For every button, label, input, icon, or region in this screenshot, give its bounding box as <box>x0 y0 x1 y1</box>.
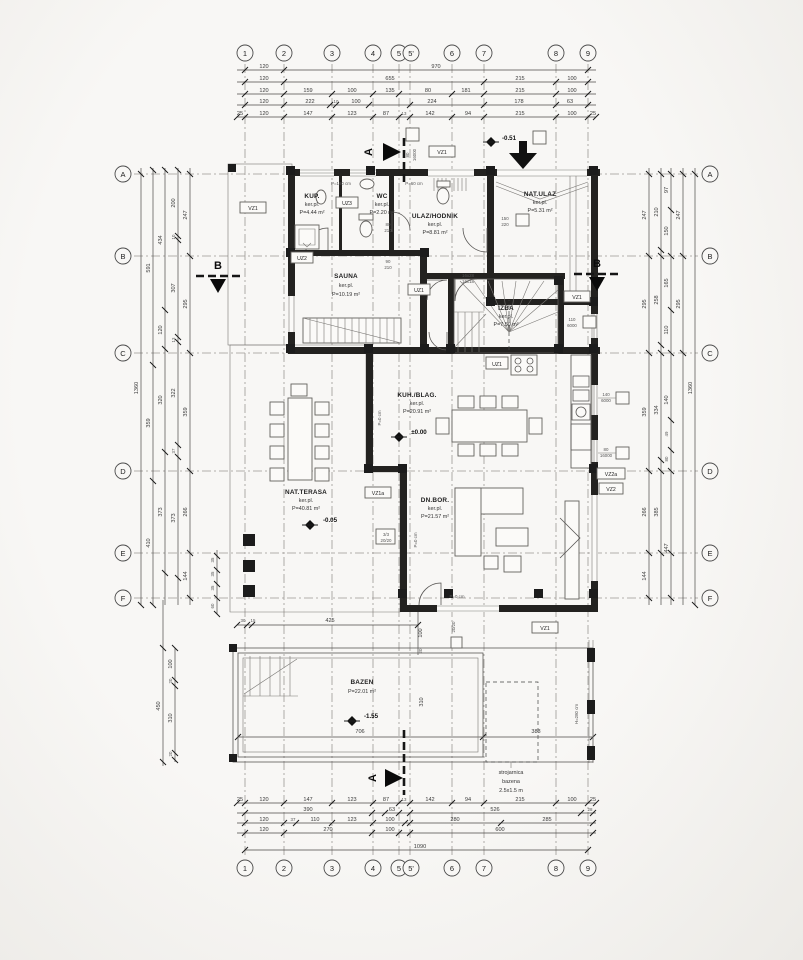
dim: 224 <box>427 99 436 105</box>
dim: 15 <box>251 618 256 623</box>
dim: 49 <box>664 431 669 436</box>
grid-label: 2 <box>282 864 286 873</box>
spec: 3/3 <box>383 532 390 537</box>
dim: 359 <box>642 407 648 416</box>
dim: 110 <box>664 326 670 335</box>
dim: 13 <box>402 111 407 116</box>
room-area: P=21.57 m² <box>421 514 449 520</box>
room-name: DN.BOR. <box>421 497 449 504</box>
dim: 215 <box>515 797 524 803</box>
dim: 37 <box>171 448 176 453</box>
dim: 97 <box>664 187 670 193</box>
dim: 373 <box>171 513 177 522</box>
room-name: KUP. <box>304 193 319 200</box>
spec: 80 <box>405 152 410 157</box>
spec: P=0 cm <box>449 594 464 599</box>
dim: 123 <box>347 797 356 803</box>
toilet <box>360 221 372 237</box>
dim: 63 <box>389 807 395 813</box>
grid-label: 1 <box>243 864 247 873</box>
room-area: P=22.01 m² <box>348 689 376 695</box>
dim: 307 <box>171 283 177 292</box>
dim: 591 <box>146 263 152 272</box>
level-value: -1.55 <box>364 713 379 720</box>
grid-label: 6 <box>450 49 454 58</box>
room-name: IZBA <box>498 305 514 312</box>
dim: 1090 <box>414 844 426 850</box>
dim: 135 <box>385 88 394 94</box>
dim: 100 <box>351 99 360 105</box>
note-line: strojarnica <box>499 770 524 776</box>
terrace-table <box>288 398 312 480</box>
tag: VZ2a <box>605 472 618 478</box>
grid-label: 4 <box>371 49 375 58</box>
dim: 144 <box>183 571 189 580</box>
grid-label: F <box>708 594 713 603</box>
dim: 100 <box>567 88 576 94</box>
dim: 100 <box>418 628 424 637</box>
dim: 970 <box>431 64 440 70</box>
room-finish: ker.pl. <box>499 314 513 320</box>
spec: 16x28 <box>462 273 475 278</box>
dim: 87 <box>383 797 389 803</box>
dim: 20 <box>168 751 173 756</box>
note-line: 2.5x1.5 m <box>499 788 523 794</box>
dim: 94 <box>465 797 471 803</box>
spec: 16000 <box>412 148 417 161</box>
terrace-post <box>243 534 255 546</box>
pool-outer <box>238 653 483 757</box>
sink <box>360 179 374 189</box>
level-value: ±0.00 <box>411 429 427 436</box>
grid-label: 9 <box>586 864 590 873</box>
dim: 80 <box>425 88 431 94</box>
dim: 60 <box>210 603 215 608</box>
dim: 35 <box>210 571 215 576</box>
room-finish: ker.pl. <box>410 401 424 407</box>
section-letter: A <box>363 148 375 156</box>
room-area: P=20.91 m² <box>403 409 431 415</box>
section-letter: A <box>367 774 379 782</box>
room-finish: ker.pl. <box>428 222 442 228</box>
tag: VZ1 <box>248 206 258 212</box>
dim: 147 <box>303 797 312 803</box>
dim: 63 <box>567 99 573 105</box>
dim: 100 <box>567 111 576 117</box>
spec: 6000 <box>601 398 611 403</box>
pool-stairs <box>243 656 298 696</box>
notes: strojarnica bazena 2.5x1.5 m <box>499 770 524 794</box>
sofa <box>455 488 481 556</box>
dim: 373 <box>158 507 164 516</box>
pergola-grid <box>228 164 292 345</box>
spec: 16000 <box>600 453 613 458</box>
grid-label: 3 <box>330 864 334 873</box>
dim: 120 <box>259 111 268 117</box>
room-area: P=5.31 m² <box>527 208 552 214</box>
dim: 383 <box>531 729 540 735</box>
dim: 147 <box>303 111 312 117</box>
dim: 94 <box>465 111 471 117</box>
dim: 100 <box>385 827 394 833</box>
dim: 25 <box>237 111 243 117</box>
dim: 13 <box>171 337 176 342</box>
dim: 142 <box>425 797 434 803</box>
dim: 215 <box>515 88 524 94</box>
dim: 200 <box>171 198 177 207</box>
terrace-post <box>243 585 255 597</box>
dim: 100 <box>347 88 356 94</box>
dim: 25 <box>237 797 243 803</box>
grid-label: C <box>120 349 126 358</box>
spec: 110 <box>569 317 577 322</box>
grid-label: 7 <box>482 864 486 873</box>
dim: 270 <box>323 827 332 833</box>
spec: 20/20 <box>451 621 456 633</box>
dim: 35 <box>210 585 215 590</box>
room-name: ULAZ/HODNIK <box>412 213 458 220</box>
dim: 280 <box>450 817 459 823</box>
room-name: NAT.TERASA <box>285 489 327 496</box>
dim: 123 <box>347 111 356 117</box>
dim: 295 <box>183 299 189 308</box>
dim: 178 <box>514 99 523 105</box>
dim: 450 <box>156 701 162 710</box>
room-area: P=7.50 m² <box>493 322 518 328</box>
room-finish: ker.pl. <box>305 202 319 208</box>
spec: 6000 <box>567 323 577 328</box>
room-finish: ker.pl. <box>299 498 313 504</box>
entrance-arrow <box>509 141 537 169</box>
dim: 100 <box>168 659 174 668</box>
toilet-tank <box>437 181 450 187</box>
section-letter: B <box>593 258 601 270</box>
dim: 215 <box>515 111 524 117</box>
dim: 13 <box>402 797 407 802</box>
grid-label: B <box>707 252 712 261</box>
dim: 1360 <box>134 382 140 394</box>
kitchen-counter <box>571 355 591 468</box>
dimension-numbers-left: 1360 591 359 410 434 120 320 373 200 10 … <box>134 198 215 756</box>
cooktop <box>511 355 537 375</box>
dim: 266 <box>183 507 189 516</box>
grid-label: E <box>707 549 712 558</box>
grid-label: 3 <box>330 49 334 58</box>
dim: 20 <box>168 678 173 683</box>
spec: P=180 cm <box>331 181 351 186</box>
dim: 385 <box>654 507 660 516</box>
room-finish: ker.pl. <box>533 200 547 206</box>
room-name: BAZEN <box>350 679 373 686</box>
terrace-post <box>243 560 255 572</box>
pool-machinery-room <box>486 682 538 762</box>
dim: 359 <box>183 407 189 416</box>
dim: 655 <box>385 76 394 82</box>
note-line: bazena <box>502 779 520 785</box>
dim: 150 <box>664 226 670 235</box>
pergola-post <box>228 164 236 172</box>
dim: 120 <box>259 88 268 94</box>
spec: 150 <box>501 216 509 221</box>
grid-label: 5' <box>408 864 414 873</box>
tag: VZ1 <box>540 626 550 632</box>
dim: 140 <box>664 395 670 404</box>
pool-deck <box>233 648 593 762</box>
spec: P=0 cm <box>377 410 382 425</box>
room-name: KUH./BLAG. <box>397 392 436 399</box>
room-finish: ker.pl. <box>428 506 442 512</box>
dim: 159 <box>303 88 312 94</box>
dim: 144 <box>642 571 648 580</box>
room-name: WC <box>376 193 387 200</box>
dim: 100 <box>385 817 394 823</box>
spec: 20/20 <box>381 538 393 543</box>
dim: 120 <box>259 76 268 82</box>
dim: 87 <box>383 111 389 117</box>
dim: 390 <box>303 807 312 813</box>
grid-label: 8 <box>554 864 558 873</box>
dim: 447 <box>664 543 670 552</box>
level-value: -0.51 <box>502 135 517 142</box>
dim: 247 <box>676 210 682 219</box>
dim: 28 <box>588 807 593 812</box>
room-finish: ker.pl. <box>339 283 353 289</box>
dim: 123 <box>347 817 356 823</box>
spec: 80 <box>386 222 391 227</box>
level-value: -0.05 <box>323 517 338 524</box>
grid-label: B <box>120 252 125 261</box>
dim: 10 <box>334 99 339 104</box>
room-area: P=2.20 m² <box>369 210 394 216</box>
dim: 30 <box>241 618 246 623</box>
dim: 285 <box>542 817 551 823</box>
grid-label: C <box>707 349 713 358</box>
spec: 80 <box>604 447 609 452</box>
grid-label: 8 <box>554 49 558 58</box>
dimension-numbers-inner: 706 310 383 30 15 425 100 20 <box>241 618 541 735</box>
coffee-table <box>496 528 528 546</box>
tag: VZ1a <box>372 491 385 497</box>
dimension-numbers-bottom: 25 120 147 123 87 13 142 94 215 100 25 3… <box>237 797 596 850</box>
dim: 142 <box>425 111 434 117</box>
dim: 310 <box>419 697 425 706</box>
grid-label: D <box>707 467 713 476</box>
grid-label: E <box>120 549 125 558</box>
floor-plan-page: 120 970 120 655 215 100 120 159 100 135 … <box>0 0 803 960</box>
spec: 140 <box>602 392 610 397</box>
dim: 526 <box>490 807 499 813</box>
tag: VZ2 <box>606 487 616 493</box>
dim: 434 <box>158 235 164 244</box>
tv-unit <box>565 501 579 599</box>
section-letter: B <box>214 260 222 272</box>
dim: 120 <box>259 797 268 803</box>
pool-inner <box>243 658 478 752</box>
dim: 120 <box>259 827 268 833</box>
dim: 80 <box>664 456 669 461</box>
dim: H=280 cm <box>574 704 579 724</box>
dim: 120 <box>259 64 268 70</box>
room-area: P=10.19 m² <box>332 292 360 298</box>
dim: 120 <box>259 817 268 823</box>
grid-label: 9 <box>586 49 590 58</box>
grid-label: D <box>120 467 126 476</box>
dim: 110 <box>311 817 320 823</box>
grid-label: 5' <box>408 49 414 58</box>
tag: VZ1 <box>437 150 447 156</box>
dim: 100 <box>567 797 576 803</box>
dim: 210 <box>654 207 660 216</box>
dining-table <box>452 410 527 442</box>
dim: 120 <box>259 99 268 105</box>
dim: 10 <box>171 234 176 239</box>
dim: 266 <box>642 507 648 516</box>
dim: 600 <box>495 827 504 833</box>
floor-plan-drawing: 120 970 120 655 215 100 120 159 100 135 … <box>0 0 803 960</box>
dim: 425 <box>325 618 334 624</box>
dim: 334 <box>654 405 660 414</box>
dim: 247 <box>642 210 648 219</box>
dim: 37 <box>291 817 296 822</box>
dim: 295 <box>676 299 682 308</box>
dim: 222 <box>305 99 314 105</box>
dim: 410 <box>146 538 152 547</box>
spec: 90 <box>386 259 391 264</box>
dim: 247 <box>183 210 189 219</box>
spec: 210 <box>384 265 392 270</box>
room-area: P=4.44 m² <box>299 210 324 216</box>
dim: 1360 <box>688 382 694 394</box>
living-room <box>455 488 580 599</box>
toilet <box>437 188 449 204</box>
dimension-lines <box>141 70 695 850</box>
tag: UZ2 <box>297 256 307 262</box>
dim: 181 <box>461 88 470 94</box>
tag: UZ1 <box>414 288 424 294</box>
room-name: SAUNA <box>334 273 358 280</box>
grid-label: 5 <box>397 49 401 58</box>
dim: 295 <box>642 299 648 308</box>
grid-label: 1 <box>243 49 247 58</box>
dim: 165 <box>664 278 670 287</box>
room-finish: ker.pl. <box>375 202 389 208</box>
grid-label: 6 <box>450 864 454 873</box>
grid-label: 2 <box>282 49 286 58</box>
dimension-numbers-top: 120 970 120 655 215 100 120 159 100 135 … <box>237 64 596 117</box>
dim: 706 <box>355 729 364 735</box>
grid-label: F <box>121 594 126 603</box>
shower-tray <box>295 225 319 249</box>
spec: P=60 cm <box>405 181 423 186</box>
grid-label: 4 <box>371 864 375 873</box>
grid-label: A <box>120 170 125 179</box>
spec: P=0 cm <box>413 532 418 547</box>
grid-label: 5 <box>397 864 401 873</box>
sauna-bench <box>303 318 401 343</box>
spec: 210 <box>384 228 392 233</box>
tag: VZ1 <box>572 295 582 301</box>
grid-label: 7 <box>482 49 486 58</box>
dim: 322 <box>171 388 177 397</box>
dim: 359 <box>146 418 152 427</box>
dim: 320 <box>158 395 164 404</box>
grid-label: A <box>707 170 712 179</box>
dim: 35 <box>210 557 215 562</box>
dim: 258 <box>654 295 660 304</box>
dim: 100 <box>567 76 576 82</box>
room-area: P=40.81 m² <box>292 506 320 512</box>
dim: 25 <box>590 797 596 803</box>
dim: 25 <box>590 111 596 117</box>
tag: UZ1 <box>492 362 502 368</box>
dim: 120 <box>158 325 164 334</box>
dim: 215 <box>515 76 524 82</box>
spec: 220 <box>501 222 509 227</box>
terrace-dining <box>270 384 329 481</box>
room-name: NAT.ULAZ <box>524 191 556 198</box>
room-area: P=8.81 m² <box>422 230 447 236</box>
dim: 310 <box>168 713 174 722</box>
tag: UZ3 <box>342 201 352 207</box>
spec: 16x18 <box>462 279 475 284</box>
